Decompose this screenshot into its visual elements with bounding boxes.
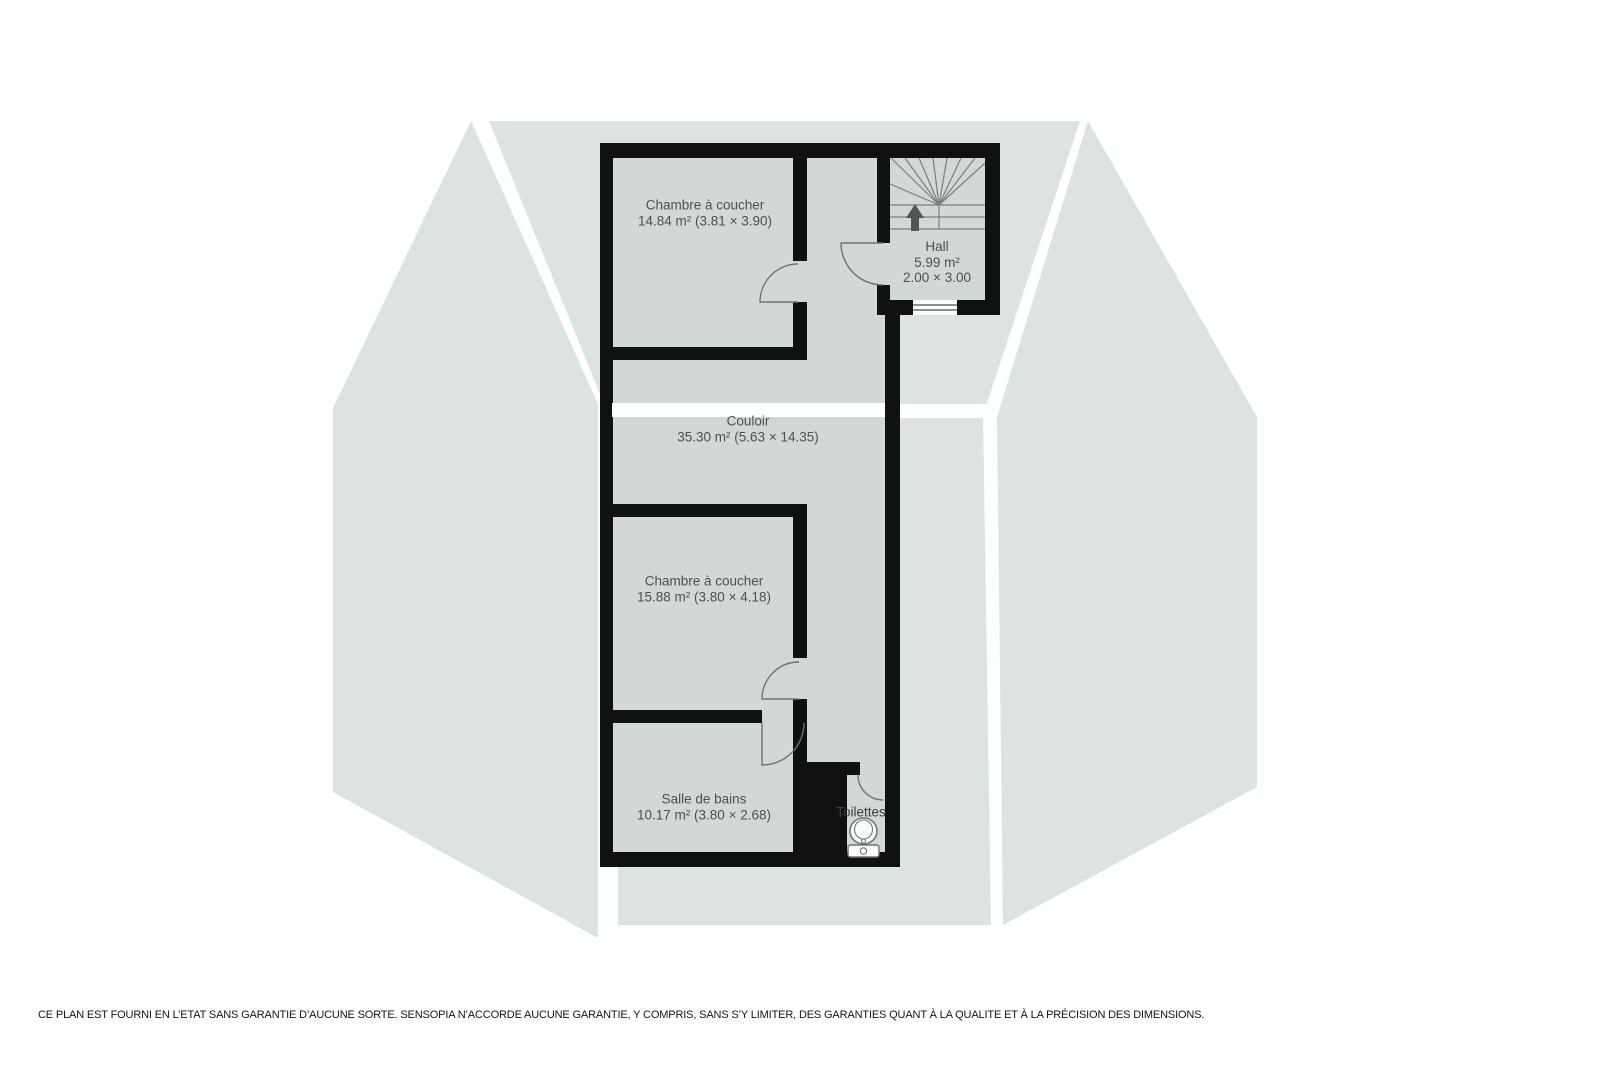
opening-bedroom-top [793,261,807,302]
roof-ridge-gap [895,404,990,418]
label-toilet: Toilettes [836,804,886,820]
room-details: 35.30 m² (5.63 × 14.35) [677,429,818,445]
room-name: Toilettes [836,804,886,820]
room-dimensions: 2.00 × 3.00 [903,270,971,286]
room-name: Salle de bains [637,792,771,808]
toilet-wall-stub [847,762,860,775]
room-name: Couloir [677,414,818,430]
window-icon [913,300,957,315]
floorplan-page: Chambre à coucher 14.84 m² (3.81 × 3.90)… [0,0,1600,1067]
disclaimer-text: CE PLAN EST FOURNI EN L’ETAT SANS GARANT… [38,1009,1204,1021]
room-details: 10.17 m² (3.80 × 2.68) [637,807,771,823]
room-name: Chambre à coucher [637,574,771,590]
room-name: Chambre à coucher [638,198,772,214]
floor-bedroom-top [613,158,793,347]
floor-bathroom [613,723,793,852]
label-bathroom: Salle de bains 10.17 m² (3.80 × 2.68) [637,792,771,823]
room-name: Hall [903,239,971,255]
room-area: 5.99 m² [903,254,971,270]
room-details: 15.88 m² (3.80 × 4.18) [637,589,771,605]
opening-hall [877,243,890,285]
opening-bedroom-middle [793,658,807,699]
toilet-icon [848,818,879,857]
label-bedroom-top: Chambre à coucher 14.84 m² (3.81 × 3.90) [638,198,772,229]
label-hall: Hall 5.99 m² 2.00 × 3.00 [903,239,971,286]
opening-bathroom [762,710,793,723]
label-bedroom-middle: Chambre à coucher 15.88 m² (3.80 × 4.18) [637,574,771,605]
room-details: 14.84 m² (3.81 × 3.90) [638,213,772,229]
label-corridor: Couloir 35.30 m² (5.63 × 14.35) [677,414,818,445]
floorplan-drawing [0,0,1600,1067]
